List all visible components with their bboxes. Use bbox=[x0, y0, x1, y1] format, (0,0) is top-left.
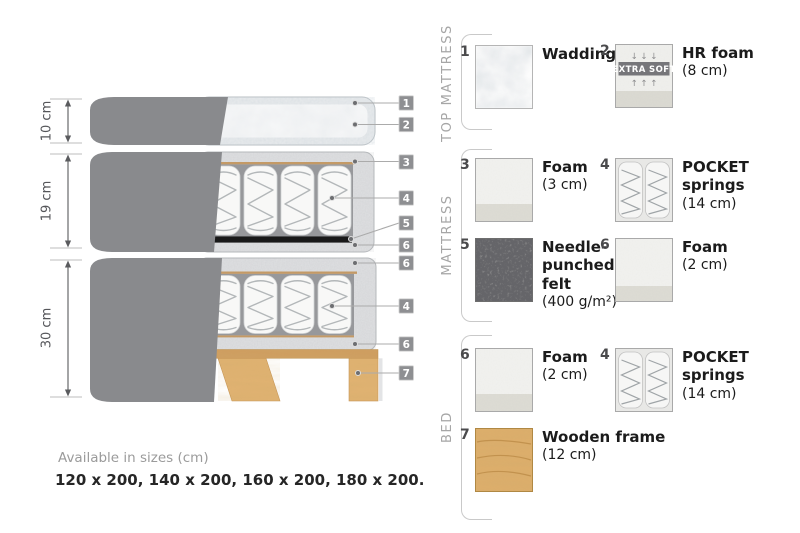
item-number: 7 bbox=[460, 428, 473, 442]
legend-item-wadding: 1 Wadding bbox=[460, 45, 616, 109]
callout-6b: 6 bbox=[403, 258, 410, 270]
felt-strip bbox=[201, 236, 352, 242]
item-size: (2 cm) bbox=[542, 366, 588, 384]
item-size: (3 cm) bbox=[542, 176, 588, 194]
item-number: 2 bbox=[600, 44, 613, 58]
item-size: (14 cm) bbox=[682, 195, 749, 213]
legend-item-wooden-frame: 7 Wooden frame (12 cm) bbox=[460, 428, 665, 492]
callout-6c: 6 bbox=[403, 339, 410, 351]
foam-swatch bbox=[475, 158, 533, 222]
item-number: 1 bbox=[460, 45, 473, 59]
wadding-swatch bbox=[475, 45, 533, 109]
item-name: POCKET springs bbox=[682, 158, 749, 195]
felt-swatch bbox=[475, 238, 533, 302]
callout-4: 4 bbox=[403, 193, 410, 205]
item-number: 6 bbox=[600, 238, 613, 252]
fabric-cover bbox=[90, 152, 222, 252]
wood-swatch bbox=[475, 428, 533, 492]
legend-item-foam-2cm: 6 Foam (2 cm) bbox=[600, 238, 728, 302]
callout-2: 2 bbox=[403, 119, 410, 131]
foam-swatch bbox=[475, 348, 533, 412]
fabric-cover bbox=[90, 258, 222, 402]
top-mattress-cutaway bbox=[90, 97, 375, 145]
item-name: Foam bbox=[542, 158, 588, 176]
item-number: 3 bbox=[460, 158, 473, 172]
item-number: 4 bbox=[600, 348, 613, 362]
item-name: Wooden frame bbox=[542, 428, 665, 446]
legend-item-hr-foam: 2 ↓ ↓ ↓ EXTRA SOFT ↑ ↑ ↑ HR foam (8 cm) bbox=[600, 44, 754, 108]
svg-text:EXTRA SOFT: EXTRA SOFT bbox=[615, 65, 673, 75]
foam-swatch bbox=[615, 238, 673, 302]
item-size: (14 cm) bbox=[682, 385, 749, 403]
dimension-indicators: 10 cm 19 cm 30 cm bbox=[40, 99, 83, 397]
mattress-layers-infographic: 10 cm 19 cm 30 cm bbox=[0, 0, 800, 533]
pocket-springs-swatch bbox=[615, 348, 673, 412]
item-name: Foam bbox=[542, 348, 588, 366]
dim-19cm: 19 cm bbox=[40, 181, 55, 222]
hr-foam-swatch: ↓ ↓ ↓ EXTRA SOFT ↑ ↑ ↑ bbox=[615, 44, 673, 108]
callout-1: 1 bbox=[403, 98, 410, 110]
legend-item-pocket-springs-bed: 4 POCKET springs (14 cm) bbox=[600, 348, 749, 412]
section-title-mattress: MATTRESS bbox=[439, 185, 457, 285]
dim-10cm: 10 cm bbox=[40, 101, 55, 142]
callout-5: 5 bbox=[403, 218, 410, 230]
item-size: (12 cm) bbox=[542, 446, 665, 464]
bed-cutaway bbox=[90, 258, 383, 402]
item-name: Foam bbox=[682, 238, 728, 256]
legend-item-pocket-springs: 4 POCKET springs (14 cm) bbox=[600, 158, 749, 222]
item-size: (2 cm) bbox=[682, 256, 728, 274]
callout-6: 6 bbox=[403, 240, 410, 252]
item-number: 5 bbox=[460, 238, 473, 252]
callout-3: 3 bbox=[403, 157, 410, 169]
callout-4b: 4 bbox=[403, 301, 410, 313]
mattress-cutaway bbox=[90, 152, 374, 252]
legend-item-felt: 5 Needle- punched felt (400 g/m²) bbox=[460, 238, 617, 311]
legend-item-foam-3cm: 3 Foam (3 cm) bbox=[460, 158, 588, 222]
callout-7: 7 bbox=[403, 368, 410, 380]
item-number: 4 bbox=[600, 158, 613, 172]
item-name: HR foam bbox=[682, 44, 754, 62]
section-title-bed: BED bbox=[439, 405, 457, 449]
item-size: (8 cm) bbox=[682, 62, 754, 80]
compress-arrows-down-icon: ↓ ↓ ↓ bbox=[631, 52, 658, 62]
fabric-cover bbox=[90, 97, 228, 145]
available-sizes-label: Available in sizes (cm) bbox=[58, 450, 209, 466]
legend-item-foam-2cm-bed: 6 Foam (2 cm) bbox=[460, 348, 588, 412]
section-title-top-mattress: TOP MATTRESS bbox=[439, 18, 457, 148]
item-number: 6 bbox=[460, 348, 473, 362]
available-sizes-values: 120 x 200, 140 x 200, 160 x 200, 180 x 2… bbox=[55, 471, 424, 489]
pocket-springs-swatch bbox=[615, 158, 673, 222]
wooden-frame bbox=[201, 350, 383, 402]
dim-30cm: 30 cm bbox=[40, 308, 55, 349]
item-name: POCKET springs bbox=[682, 348, 749, 385]
expand-arrows-up-icon: ↑ ↑ ↑ bbox=[631, 79, 658, 89]
